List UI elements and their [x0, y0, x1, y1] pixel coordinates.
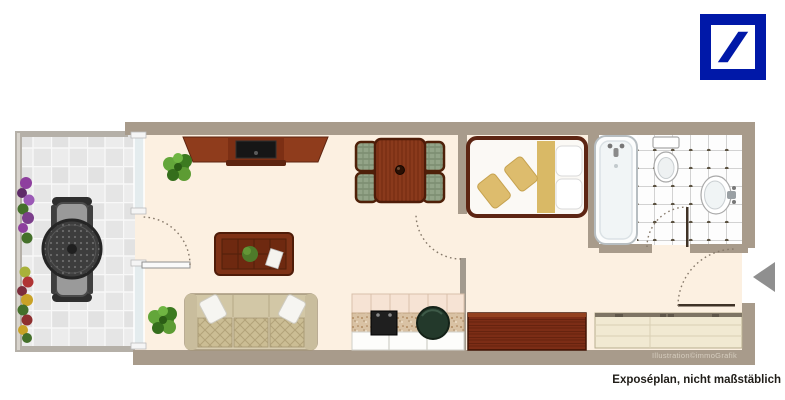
tub-faucet-icon	[614, 148, 619, 157]
bed-pillow-white	[556, 146, 582, 176]
bed-pillow-white	[556, 179, 582, 209]
wardrobe	[595, 313, 742, 348]
wall-bathroom-bottom-left	[599, 244, 652, 253]
window	[134, 136, 144, 213]
seat-cushion	[198, 318, 232, 347]
sofa	[185, 294, 317, 350]
bathtub	[595, 136, 637, 244]
disclaimer-text: Exposéplan, nicht maßstäblich	[612, 374, 781, 386]
bed-runner	[537, 141, 555, 213]
sink-faucet-icon	[727, 191, 736, 199]
balcony	[15, 131, 136, 352]
door-leaf	[678, 304, 735, 307]
hall-sideboard	[468, 313, 586, 350]
kitchen-counter	[352, 294, 464, 350]
screenshot-root: Illustration©immoGrafik Exposéplan, nich…	[0, 0, 785, 400]
coffee-table	[215, 233, 293, 275]
seat-cushion	[270, 318, 304, 347]
window	[134, 264, 144, 347]
wall-top	[125, 122, 755, 135]
credit-text: Illustration©immoGrafik	[652, 351, 737, 360]
wall-right-lower	[742, 303, 755, 365]
seat-cushion	[234, 318, 268, 347]
dining-set	[356, 139, 444, 202]
door-leaf	[686, 207, 689, 247]
entrance-arrow-icon	[753, 262, 775, 292]
balcony-table	[43, 220, 101, 278]
kitchen-sink-icon	[371, 311, 397, 335]
balcony-railing-top	[15, 131, 128, 137]
wall-right-upper	[742, 122, 755, 248]
balcony-railing-bottom	[15, 346, 136, 352]
toilet	[653, 137, 679, 182]
cabinet-fronts	[352, 332, 464, 350]
bed	[468, 138, 586, 216]
deutsche-bank-slash-logo	[700, 14, 766, 80]
tv-icon	[236, 141, 276, 158]
tv-sideboard	[183, 137, 328, 166]
door-leaf	[142, 262, 190, 268]
floor-plan: Illustration©immoGrafik Exposéplan, nich…	[0, 0, 785, 400]
wall-living-bedroom	[458, 133, 467, 214]
cooktop-icon	[417, 307, 449, 339]
